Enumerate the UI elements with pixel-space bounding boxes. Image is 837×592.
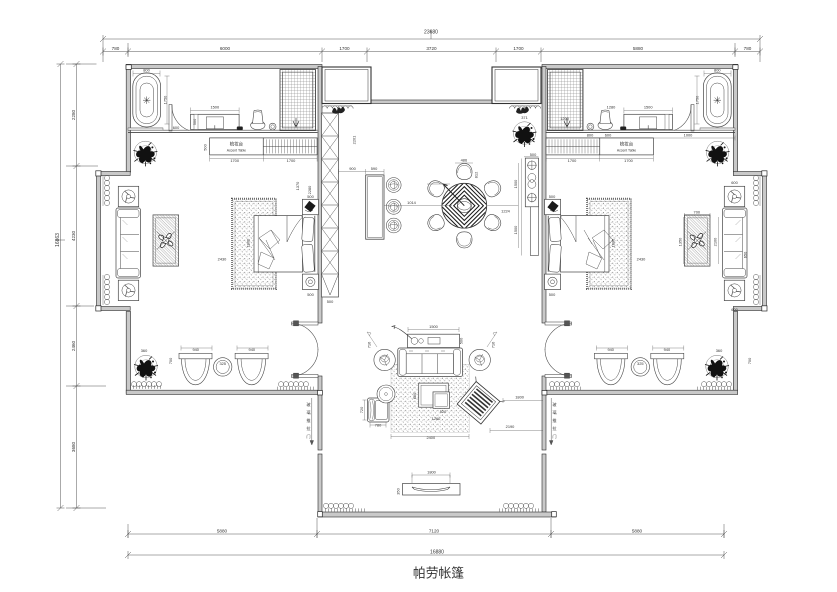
svg-text:门: 门 [306, 433, 310, 440]
svg-text:800: 800 [143, 68, 150, 73]
svg-text:500: 500 [530, 152, 537, 157]
svg-text:500: 500 [549, 292, 556, 297]
svg-text:2460: 2460 [71, 340, 76, 351]
svg-text:800: 800 [714, 68, 721, 73]
svg-text:1700: 1700 [513, 46, 524, 51]
svg-text:350: 350 [396, 487, 401, 494]
svg-text:2400: 2400 [426, 435, 435, 440]
svg-text:2280: 2280 [307, 185, 312, 194]
svg-text:4230: 4230 [71, 230, 76, 241]
svg-text:梳妆台: 梳妆台 [620, 140, 634, 147]
svg-text:2201: 2201 [352, 136, 357, 145]
svg-text:590: 590 [371, 166, 378, 171]
svg-text:1280: 1280 [607, 105, 616, 110]
svg-text:璃: 璃 [306, 409, 310, 416]
svg-text:帕劳帐篷: 帕劳帐篷 [413, 566, 464, 581]
svg-text:500: 500 [459, 337, 464, 344]
svg-text:500: 500 [549, 194, 556, 199]
svg-text:2280: 2280 [71, 109, 76, 120]
svg-text:1800: 1800 [427, 469, 436, 474]
svg-text:780: 780 [112, 46, 120, 51]
svg-text:1750: 1750 [163, 95, 168, 104]
svg-text:780: 780 [744, 46, 752, 51]
svg-text:1000: 1000 [684, 133, 693, 138]
svg-text:900: 900 [349, 166, 356, 171]
svg-text:325: 325 [219, 361, 226, 366]
svg-text:1800: 1800 [611, 238, 616, 247]
svg-text:812: 812 [474, 172, 479, 179]
svg-text:500: 500 [327, 299, 334, 304]
svg-text:325: 325 [637, 361, 644, 366]
svg-text:650: 650 [743, 251, 748, 258]
svg-text:1500: 1500 [513, 179, 518, 188]
svg-text:700: 700 [168, 357, 173, 364]
svg-text:2430: 2430 [218, 257, 227, 262]
svg-text:600: 600 [173, 125, 180, 130]
svg-text:1224: 1224 [501, 208, 510, 213]
svg-text:600: 600 [605, 133, 612, 138]
svg-text:1500: 1500 [513, 225, 518, 234]
svg-text:3720: 3720 [426, 46, 437, 51]
svg-text:360: 360 [716, 348, 723, 353]
svg-text:5880: 5880 [633, 46, 644, 51]
svg-text:371: 371 [521, 115, 528, 120]
svg-text:700: 700 [747, 357, 752, 364]
svg-text:1370: 1370 [295, 181, 300, 190]
svg-text:600: 600 [731, 180, 738, 185]
svg-text:486: 486 [461, 157, 468, 162]
svg-text:500: 500 [307, 292, 314, 297]
svg-text:3680: 3680 [71, 441, 76, 452]
svg-text:360: 360 [141, 348, 148, 353]
svg-text:500: 500 [202, 143, 207, 150]
svg-text:700: 700 [694, 210, 701, 215]
svg-text:16880: 16880 [430, 550, 444, 556]
svg-text:800: 800 [587, 133, 594, 138]
svg-text:600: 600 [731, 307, 738, 312]
svg-text:1500: 1500 [210, 105, 219, 110]
svg-text:2100: 2100 [713, 237, 718, 246]
svg-text:6000: 6000 [220, 46, 231, 51]
svg-text:推: 推 [306, 417, 310, 424]
svg-text:门: 门 [552, 433, 556, 440]
svg-text:Accent Table: Accent Table [617, 148, 636, 152]
svg-text:1500: 1500 [429, 324, 438, 329]
svg-text:推: 推 [552, 417, 556, 424]
svg-text:1800: 1800 [246, 238, 251, 247]
svg-text:716: 716 [491, 342, 496, 349]
svg-text:Accent Table: Accent Table [227, 148, 246, 152]
svg-text:2430: 2430 [637, 257, 646, 262]
svg-text:716: 716 [367, 342, 372, 349]
svg-text:600: 600 [412, 392, 417, 399]
svg-text:5880: 5880 [632, 529, 643, 534]
svg-text:1350: 1350 [678, 237, 683, 246]
svg-text:500: 500 [192, 118, 197, 125]
svg-text:1500: 1500 [644, 105, 653, 110]
svg-text:1014: 1014 [407, 200, 416, 205]
svg-text:1700: 1700 [339, 46, 350, 51]
svg-text:23680: 23680 [424, 30, 438, 36]
svg-text:梳妆台: 梳妆台 [230, 140, 244, 147]
svg-text:璃: 璃 [552, 409, 556, 416]
svg-text:1800: 1800 [515, 395, 524, 400]
svg-text:720: 720 [359, 406, 364, 413]
svg-text:1200: 1200 [560, 116, 569, 121]
svg-text:16863: 16863 [55, 233, 61, 247]
svg-text:520: 520 [440, 409, 447, 414]
svg-text:5880: 5880 [217, 529, 228, 534]
svg-text:1260: 1260 [432, 416, 441, 421]
svg-text:2190: 2190 [506, 424, 515, 429]
svg-text:7120: 7120 [429, 529, 440, 534]
